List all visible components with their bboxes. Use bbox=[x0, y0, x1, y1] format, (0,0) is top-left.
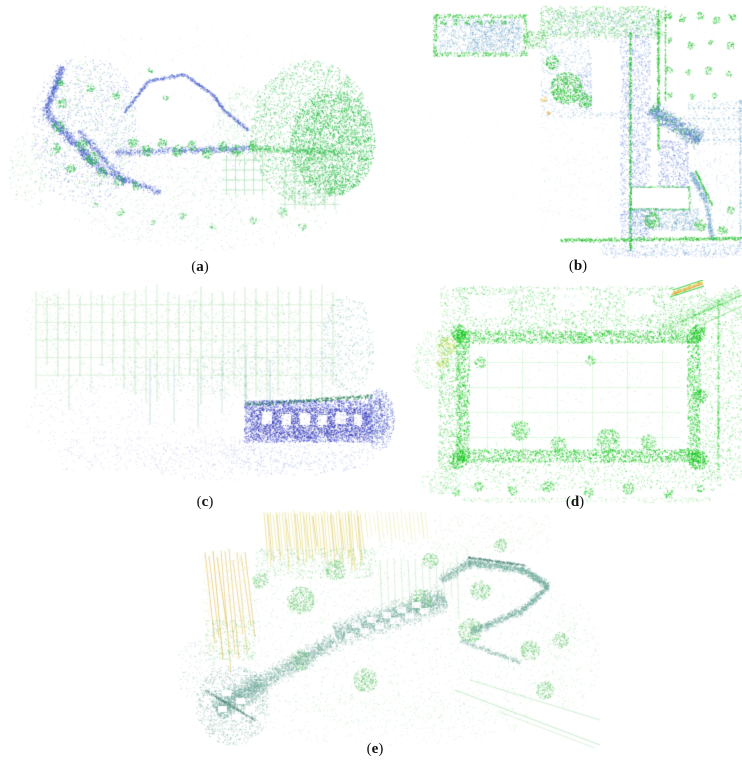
subfigure-label-a: (a) bbox=[170, 258, 230, 276]
pointcloud-canvas-e bbox=[166, 508, 602, 752]
subfigure-label-b: (b) bbox=[548, 257, 608, 275]
label-paren-close: ) bbox=[204, 259, 209, 275]
subfigure-c bbox=[16, 284, 374, 484]
pointcloud-canvas-a bbox=[4, 8, 380, 256]
subfigure-b bbox=[425, 2, 742, 258]
subfigure-label-e: (e) bbox=[345, 740, 405, 758]
pointcloud-canvas-d bbox=[362, 280, 742, 504]
subfigure-d bbox=[362, 280, 742, 504]
pointcloud-canvas-b bbox=[425, 2, 742, 258]
subfigure-e bbox=[166, 508, 602, 752]
pointcloud-canvas-c bbox=[16, 284, 374, 484]
label-letter: a bbox=[196, 259, 204, 275]
label-paren-close: ) bbox=[582, 258, 587, 274]
label-letter: b bbox=[574, 258, 582, 274]
subfigure-a bbox=[4, 8, 380, 256]
figure-page: { "figure": { "title": "", "background":… bbox=[0, 0, 742, 762]
label-paren-close: ) bbox=[378, 741, 383, 757]
